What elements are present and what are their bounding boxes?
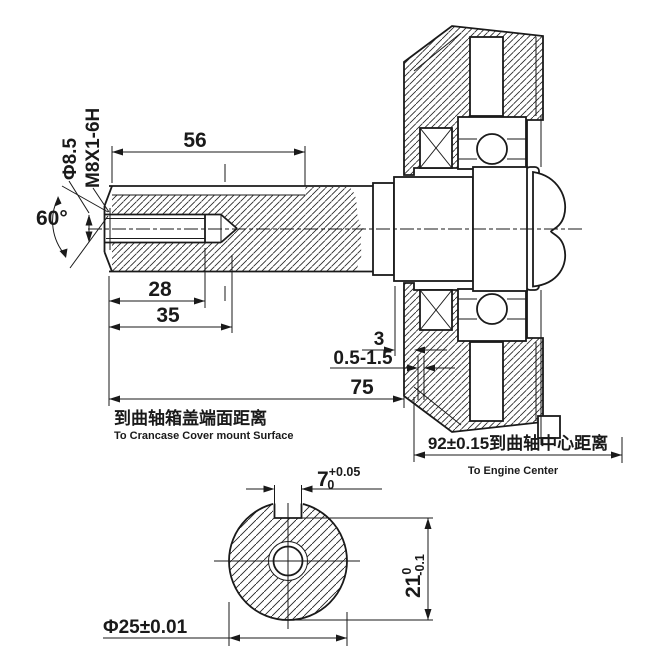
hole-diameter-label: Φ8.5: [60, 138, 81, 180]
ball-bearing-bottom: [458, 289, 526, 341]
cover-rim-slot-top: [470, 37, 503, 116]
dim-clearance-label: 0.5-1.5: [333, 348, 393, 369]
note-75-cn: 到曲轴箱盖端面距离: [114, 408, 267, 428]
dim-keyway-length: 56: [112, 129, 305, 186]
dim-thread-callout: Φ8.5 M8X1-6H 60°: [36, 108, 109, 268]
dim-keyway-width: 7+0.050: [246, 465, 382, 505]
thread-spec-label: M8X1-6H: [83, 108, 104, 188]
dim-56-label: 56: [183, 129, 206, 152]
bearing-ball-icon: [477, 134, 507, 164]
oil-seal-bottom: [420, 290, 452, 330]
ball-bearing-top: [458, 117, 526, 169]
note-75-en: To Crancase Cover mount Surface: [114, 430, 294, 442]
note-92-en: To Engine Center: [468, 465, 559, 477]
dim-shaft-length: 75 到曲轴箱盖端面距离 To Crancase Cover mount Sur…: [109, 376, 404, 442]
dim-28-label: 28: [148, 278, 172, 301]
technical-drawing: 56 28 35 75 到曲轴箱盖端面距离 To Crancase: [0, 0, 670, 670]
bearing-ball-icon: [477, 294, 507, 324]
chamfer-angle-label: 60°: [36, 207, 68, 230]
dim-25-label: Φ25±0.01: [103, 617, 188, 638]
dim-75-label: 75: [350, 376, 374, 399]
dim-7-label: 7+0.050: [317, 465, 360, 492]
shaft-end-view: 7+0.050 210-0.1 Φ25±0.01: [103, 465, 433, 646]
dim-35-label: 35: [156, 304, 180, 327]
oil-seal-top: [420, 128, 452, 168]
dim-21-label: 210-0.1: [400, 554, 427, 598]
dim-92-label: 92±0.15到曲轴中心距离: [428, 433, 608, 453]
cover-rim-slot-bottom: [470, 342, 503, 421]
dim-3-label: 3: [374, 329, 385, 350]
